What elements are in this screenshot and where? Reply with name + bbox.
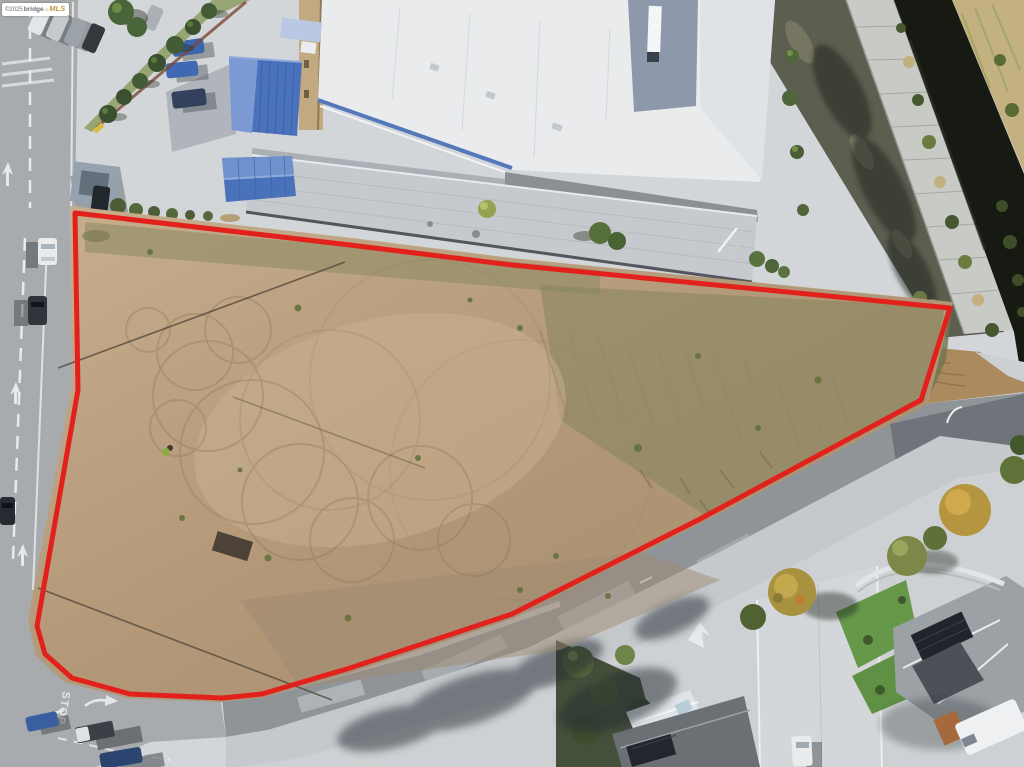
- watermark: ©2025 bridge ⌂ MLS: [2, 3, 69, 16]
- aerial-scene: STOP: [0, 0, 1024, 767]
- car: [791, 735, 813, 766]
- watermark-brand: bridge: [24, 5, 44, 14]
- tree: [589, 222, 611, 244]
- watermark-copyright: ©2025: [5, 6, 23, 15]
- tree: [887, 536, 927, 576]
- roof-gap-shadow: [628, 0, 698, 112]
- car: [28, 296, 47, 325]
- aerial-listing-photo: STOP: [0, 0, 1024, 767]
- bridgemls-logo-icon: ⌂: [45, 6, 49, 15]
- truck-trailer: [647, 6, 662, 52]
- tree: [478, 200, 496, 218]
- car: [0, 497, 15, 525]
- watermark-brand-suffix: MLS: [49, 4, 65, 13]
